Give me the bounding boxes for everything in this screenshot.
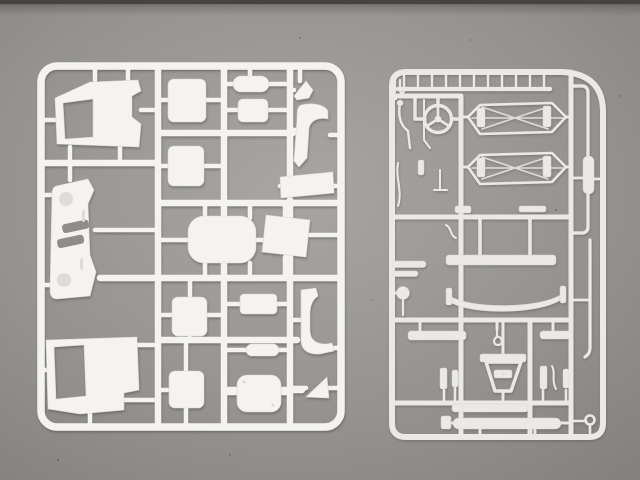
small-pill-panel: [233, 76, 269, 92]
short-bar-b: [392, 271, 418, 277]
rounded-roof-panel: [188, 216, 256, 263]
small-pill-plate: [246, 344, 279, 356]
photo-model-kit-sprues: [0, 0, 640, 480]
tie-bar-b: [519, 206, 546, 212]
trapezoid-engine-cover: [262, 215, 310, 257]
sprue-photo-canvas: [0, 0, 640, 480]
lower-cross-bar: [452, 404, 528, 412]
front-grille-panel: [50, 179, 96, 299]
seat-cushion-lower: [169, 371, 204, 408]
seat-cushion-upper: [172, 297, 207, 336]
small-plate: [240, 294, 277, 314]
seat-backrest-lower: [168, 146, 204, 186]
short-bar-a: [392, 261, 426, 268]
rounded-hatch-cover: [237, 375, 281, 412]
top-dark-band: [0, 0, 640, 4]
seat-backrest-upper: [168, 79, 206, 122]
small-rect-panel: [238, 99, 268, 122]
tie-bar-a: [455, 206, 471, 213]
